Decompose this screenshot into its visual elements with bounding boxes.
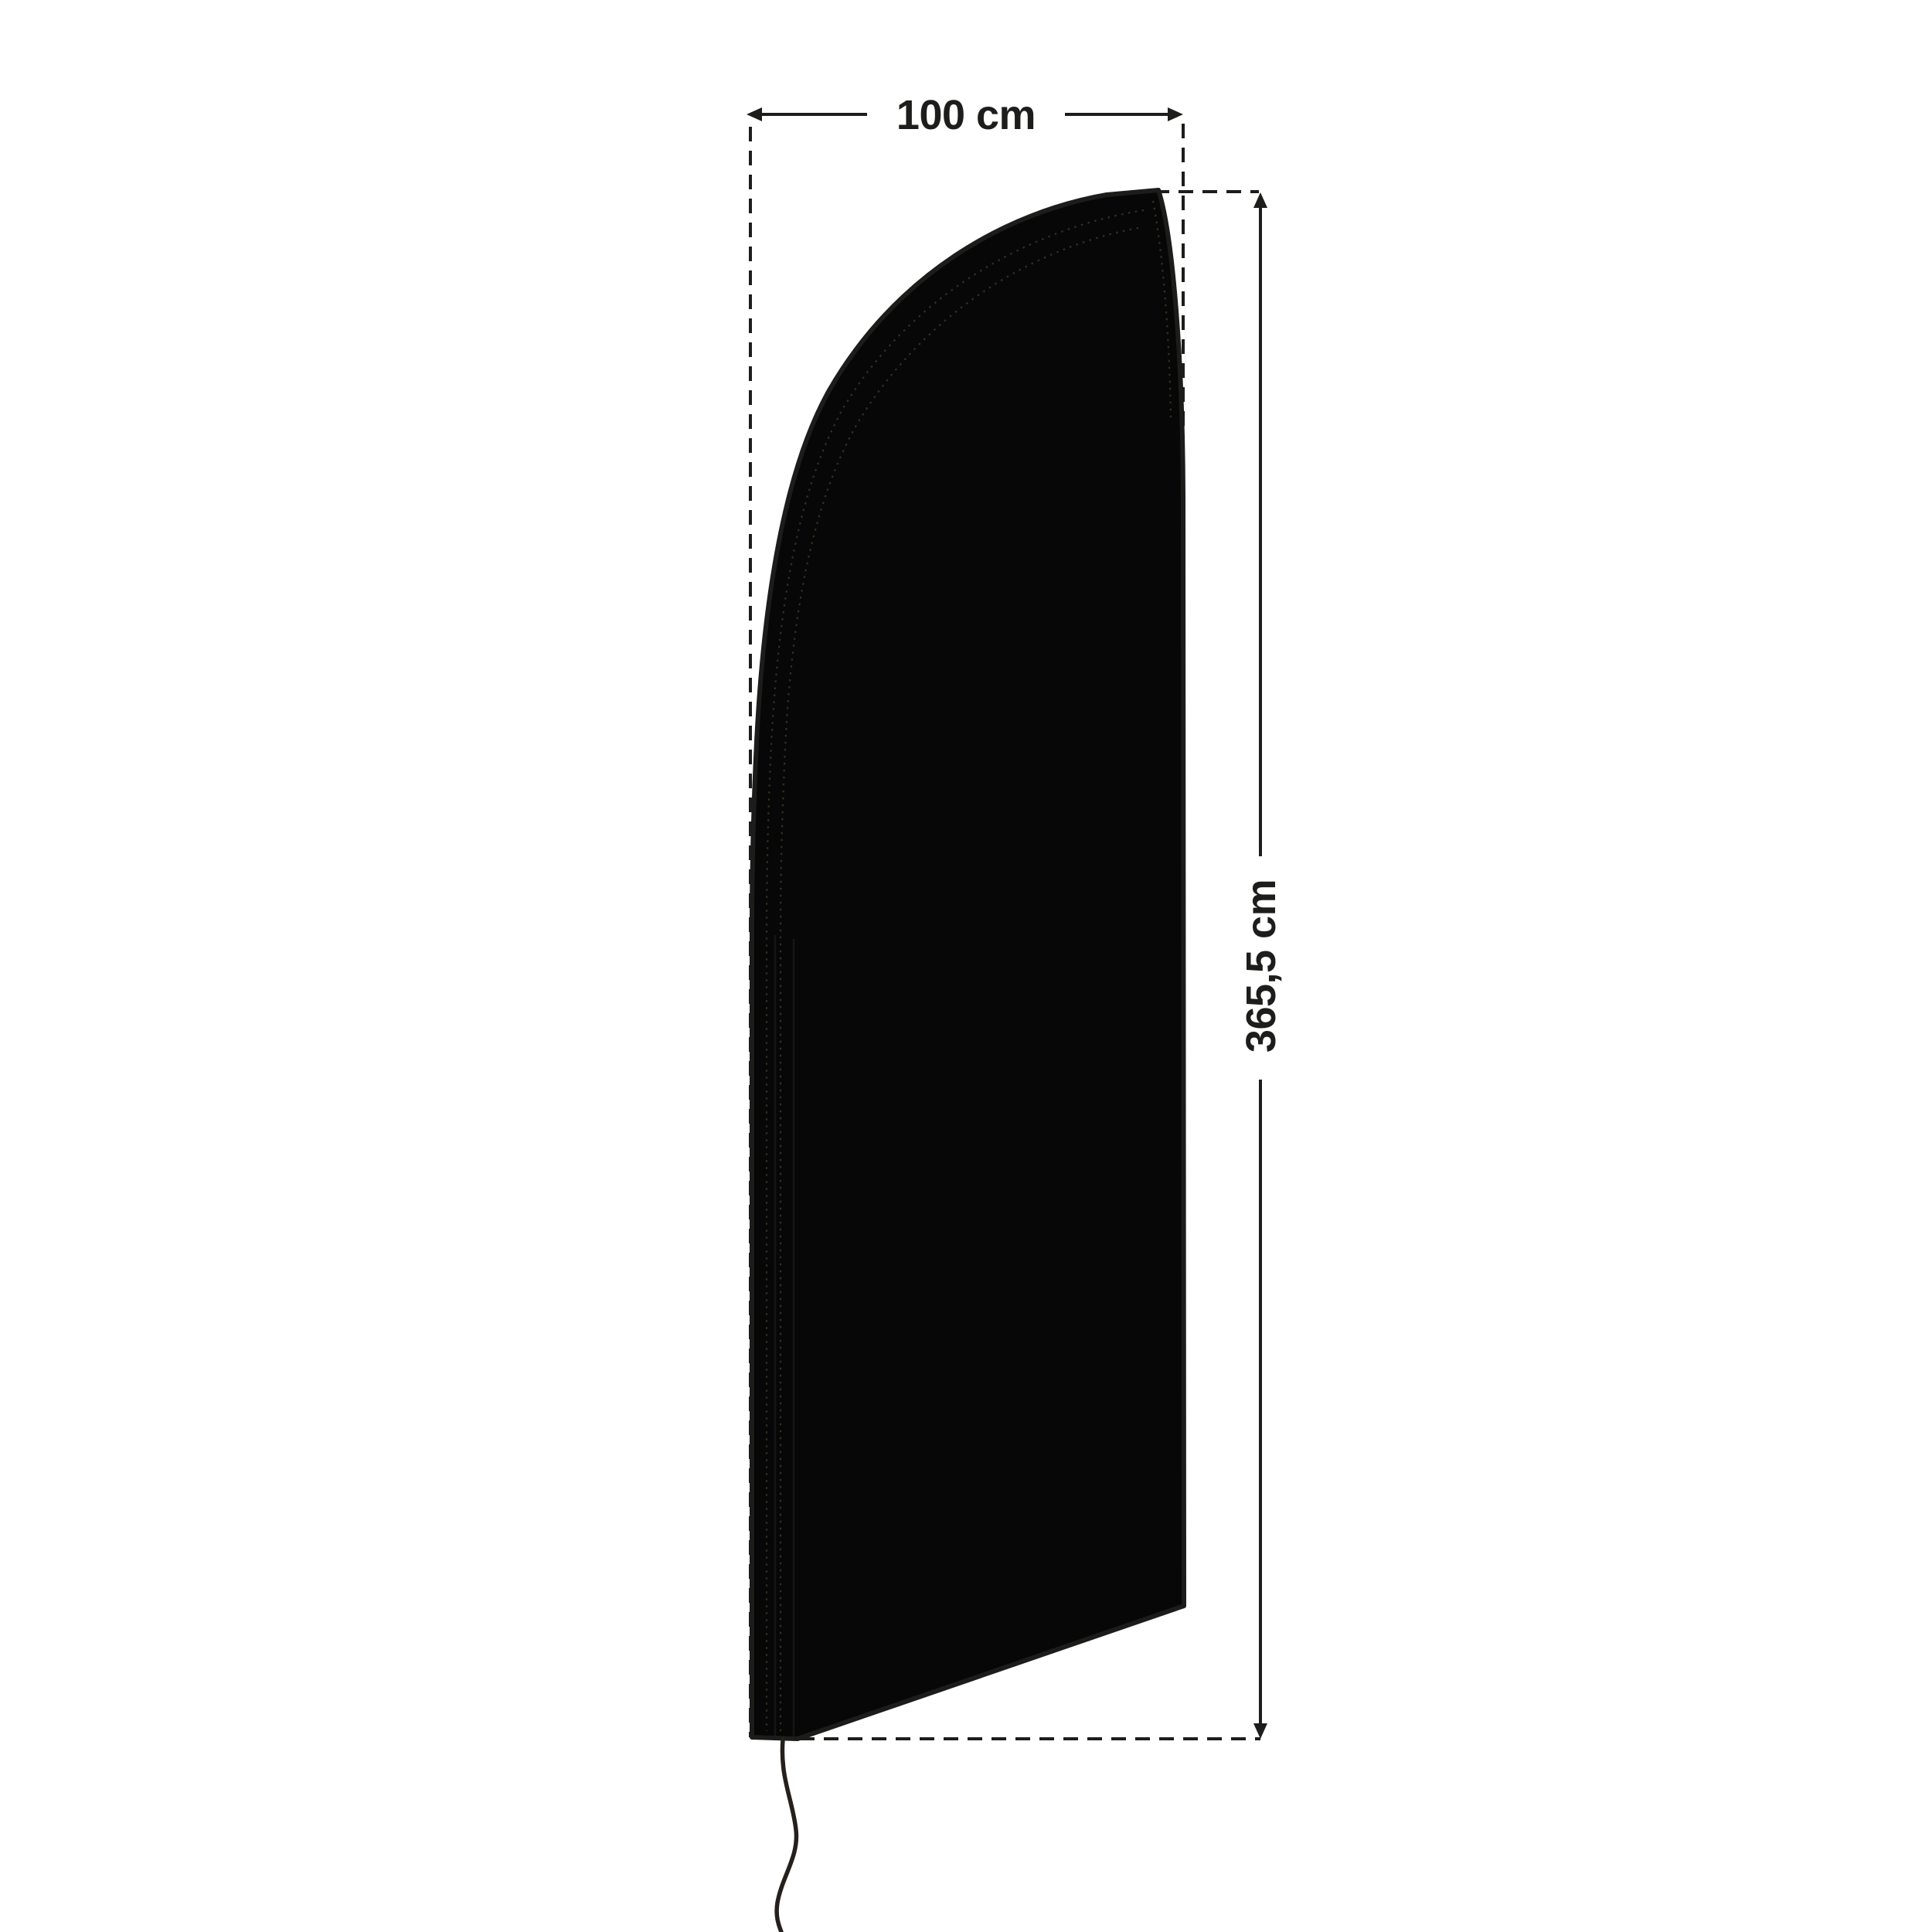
feather-flag <box>752 190 1184 1932</box>
height-arrow-bottom-icon <box>1253 1723 1267 1739</box>
flag-dimension-diagram: 100 cm 365,5 cm <box>0 0 1932 1932</box>
width-dimension-label: 100 cm <box>896 92 1036 138</box>
height-dimension-label: 365,5 cm <box>1238 879 1284 1053</box>
diagram-canvas: 100 cm 365,5 cm <box>0 0 1932 1932</box>
width-arrow-right-icon <box>1168 107 1183 121</box>
hanging-cord <box>777 1740 796 1932</box>
height-dimension: 365,5 cm <box>1238 192 1284 1739</box>
width-dimension: 100 cm <box>747 92 1183 138</box>
flag-silhouette <box>752 190 1184 1739</box>
